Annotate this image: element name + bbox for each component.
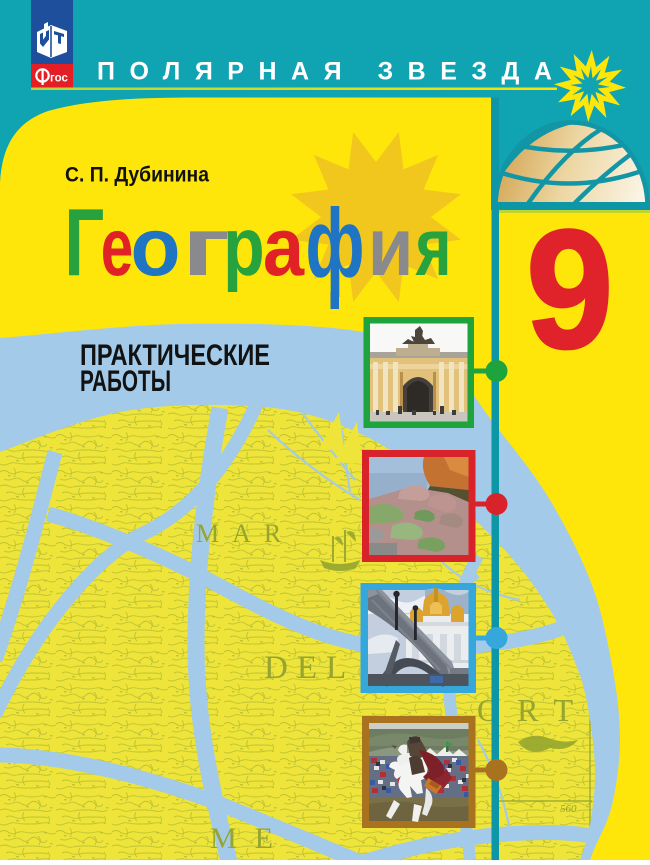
svg-text:9: 9 <box>526 195 614 384</box>
svg-text:Г: Г <box>64 189 104 296</box>
svg-text:гос: гос <box>50 73 69 85</box>
svg-text:и: и <box>368 200 414 293</box>
svg-text:р: р <box>223 200 265 293</box>
svg-text:е: е <box>101 200 133 293</box>
svg-text:РАБОТЫ: РАБОТЫ <box>80 365 171 398</box>
svg-text:о: о <box>131 200 181 293</box>
svg-text:DEL: DEL <box>264 650 355 686</box>
svg-text:560: 560 <box>560 803 577 815</box>
svg-text:я: я <box>415 200 452 293</box>
svg-text:ПОЛЯРНАЯ ЗВЕЗДА: ПОЛЯРНАЯ ЗВЕЗДА <box>97 58 566 86</box>
svg-text:MAR: MAR <box>196 519 294 548</box>
svg-text:а: а <box>263 200 305 293</box>
svg-text:ф: ф <box>306 189 365 298</box>
svg-text:ME: ME <box>210 822 291 855</box>
svg-text:С. П. Дубинина: С. П. Дубинина <box>65 163 210 187</box>
